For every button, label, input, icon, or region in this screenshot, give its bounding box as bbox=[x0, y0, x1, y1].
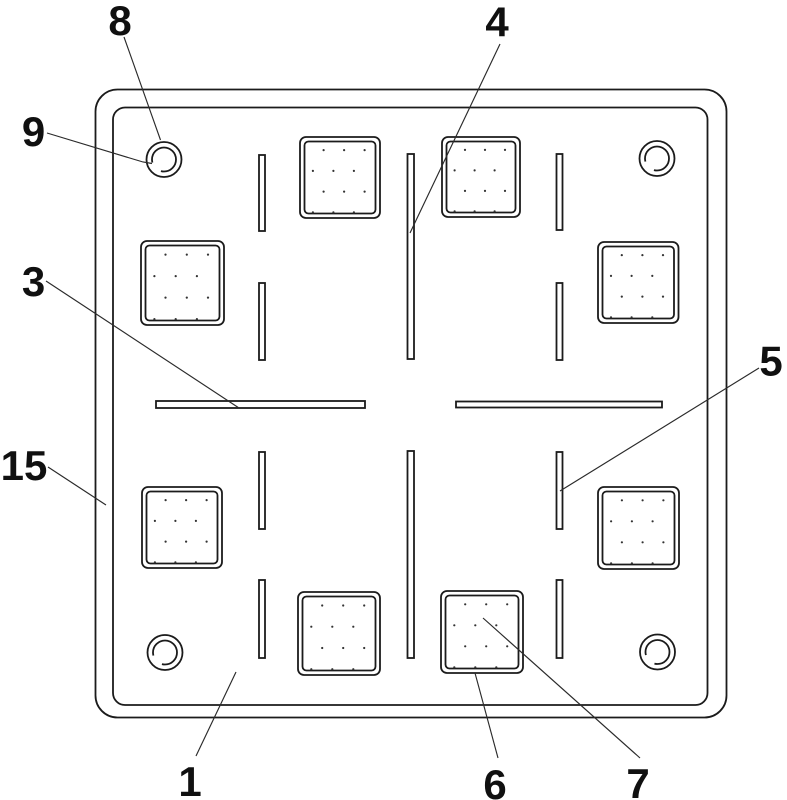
svg-text:15: 15 bbox=[1, 442, 48, 489]
svg-text:6: 6 bbox=[483, 761, 506, 800]
svg-text:4: 4 bbox=[485, 0, 509, 46]
svg-text:5: 5 bbox=[759, 338, 782, 385]
svg-text:3: 3 bbox=[22, 258, 45, 305]
svg-text:1: 1 bbox=[178, 758, 201, 800]
svg-text:9: 9 bbox=[22, 108, 45, 155]
svg-text:7: 7 bbox=[626, 760, 649, 800]
svg-text:8: 8 bbox=[108, 0, 131, 44]
